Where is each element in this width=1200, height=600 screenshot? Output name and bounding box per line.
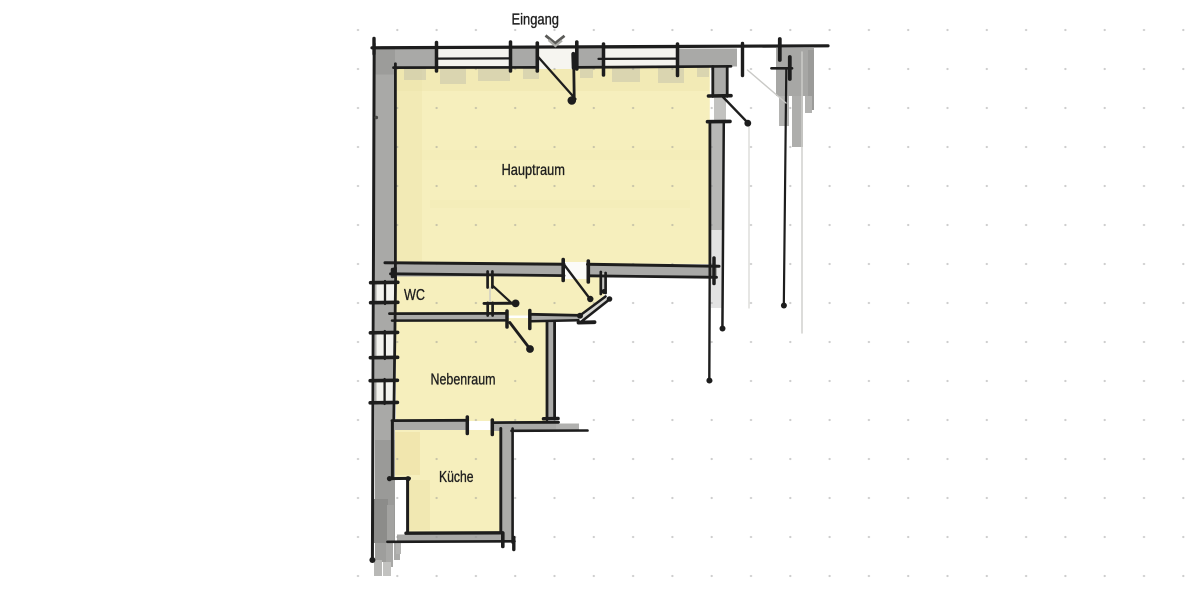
svg-text:Küche: Küche <box>439 469 474 486</box>
svg-text:Hauptraum: Hauptraum <box>502 162 566 179</box>
svg-text:Eingang: Eingang <box>512 11 560 28</box>
svg-text:Nebenraum: Nebenraum <box>431 372 496 389</box>
svg-text:WC: WC <box>404 287 425 304</box>
